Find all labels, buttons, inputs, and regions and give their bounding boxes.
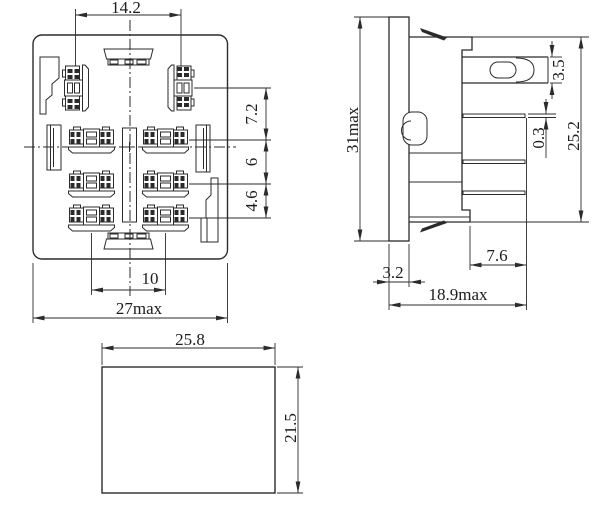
technical-drawing: 14.2 7.2 6 4.6 10 27max 31max 3.5 0.3 25… <box>0 0 600 515</box>
left-bracket <box>40 57 59 114</box>
dim-label-27max: 27max <box>116 299 163 318</box>
terminal <box>69 171 115 197</box>
dim-label-21-5: 21.5 <box>281 413 300 443</box>
terminal <box>69 205 115 231</box>
dim-label-0-3: 0.3 <box>529 127 548 148</box>
blade-hole <box>490 62 516 78</box>
top-view-outline <box>102 367 275 493</box>
top-latch-lever <box>420 28 447 41</box>
side-knob <box>403 112 427 145</box>
dim-label-25-8: 25.8 <box>175 330 205 349</box>
terminal <box>143 205 189 231</box>
pin <box>463 114 525 118</box>
pin <box>463 191 525 195</box>
dim-label-14-2: 14.2 <box>111 0 141 17</box>
terminal <box>168 65 194 111</box>
dim-label-25-2: 25.2 <box>564 121 583 151</box>
terminal <box>69 127 115 153</box>
drawing-canvas: 14.2 7.2 6 4.6 10 27max 31max 3.5 0.3 25… <box>0 0 600 515</box>
dim-label-10: 10 <box>142 269 159 288</box>
dim-label-4-6: 4.6 <box>242 190 261 211</box>
top-view <box>102 343 303 493</box>
dim-label-7-2: 7.2 <box>242 103 261 124</box>
top-latch-tab <box>104 49 153 65</box>
terminal <box>143 171 189 197</box>
right-bracket <box>201 178 218 242</box>
terminal <box>63 65 89 111</box>
dim-label-7-6: 7.6 <box>486 246 507 265</box>
right-rail <box>196 125 210 172</box>
dim-label-18-9max: 18.9max <box>428 285 488 304</box>
blade-terminal <box>462 57 548 83</box>
dimension-7-6 <box>470 118 527 310</box>
dim-label-6: 6 <box>242 158 261 167</box>
terminal <box>143 127 189 153</box>
dim-label-31max: 31max <box>343 106 362 153</box>
dim-label-3-2: 3.2 <box>382 263 403 282</box>
bottom-latch-tab <box>104 233 153 249</box>
pin <box>463 160 525 164</box>
dim-label-3-5: 3.5 <box>549 59 568 80</box>
